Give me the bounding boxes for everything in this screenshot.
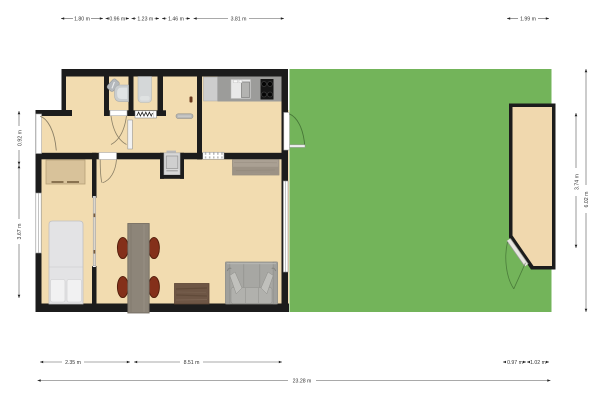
svg-text:3.74 m: 3.74 m xyxy=(575,174,581,190)
svg-text:1.99 m: 1.99 m xyxy=(520,17,536,23)
svg-text:3.67 m: 3.67 m xyxy=(17,224,23,240)
svg-text:0.96 m: 0.96 m xyxy=(109,17,125,23)
svg-text:1.23 m: 1.23 m xyxy=(137,17,153,23)
svg-text:0.92 m: 0.92 m xyxy=(18,130,24,146)
svg-text:3.81 m: 3.81 m xyxy=(231,17,247,23)
svg-text:1.46 m: 1.46 m xyxy=(168,17,184,23)
svg-text:2.35 m: 2.35 m xyxy=(65,360,81,366)
svg-text:0.97 m: 0.97 m xyxy=(507,360,523,366)
svg-text:1.80 m: 1.80 m xyxy=(74,17,90,23)
svg-text:1.02 m: 1.02 m xyxy=(530,360,546,366)
svg-text:23.28 m: 23.28 m xyxy=(293,379,312,385)
svg-text:8.51 m: 8.51 m xyxy=(184,360,200,366)
svg-text:6.02 m: 6.02 m xyxy=(584,192,590,208)
